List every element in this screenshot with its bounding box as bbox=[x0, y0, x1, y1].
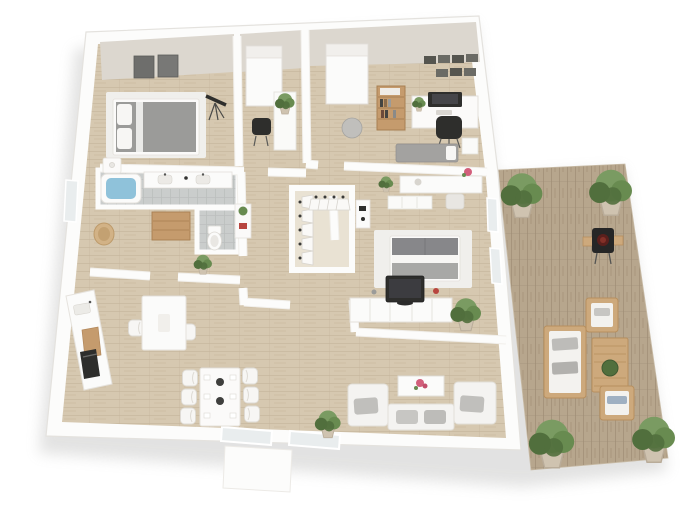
left-wall-window bbox=[64, 180, 78, 222]
kitchen-faucet bbox=[89, 301, 92, 304]
outdoor-coffee-table bbox=[592, 338, 628, 392]
tv-stand bbox=[397, 301, 413, 306]
sofa-cushion bbox=[424, 410, 446, 424]
office-bookshelf bbox=[377, 86, 405, 130]
room-dining bbox=[181, 368, 260, 426]
bed-white-stripe bbox=[392, 255, 458, 263]
centerpiece bbox=[216, 378, 224, 386]
dining-chair bbox=[243, 368, 258, 384]
red-box bbox=[239, 223, 247, 229]
table-pedestal bbox=[158, 314, 170, 332]
console-decor bbox=[361, 217, 365, 221]
bed1-pillow bbox=[117, 104, 132, 125]
office-window-blind bbox=[326, 44, 368, 56]
bathroom-vanity bbox=[144, 172, 232, 188]
folded-towel bbox=[607, 396, 627, 404]
daybed-pillow bbox=[446, 146, 456, 160]
bottom-window-1 bbox=[221, 427, 272, 445]
outdoor-sofa bbox=[544, 326, 586, 398]
dining-chair bbox=[181, 408, 196, 424]
monitor-screen bbox=[432, 94, 458, 104]
tv-panel bbox=[389, 279, 421, 298]
office-side-table bbox=[462, 138, 478, 154]
dining-chair bbox=[182, 389, 197, 405]
flower-leaves bbox=[462, 173, 466, 177]
wicker-basket-inner bbox=[98, 227, 110, 241]
deck-window-2 bbox=[490, 248, 502, 284]
floor-plan-image bbox=[0, 0, 700, 525]
faucet bbox=[164, 173, 166, 175]
study-window-blind bbox=[246, 46, 282, 58]
bathtub-water bbox=[106, 178, 136, 199]
keyboard bbox=[436, 110, 452, 115]
pink-flowers bbox=[423, 384, 428, 389]
deck-window-1 bbox=[487, 198, 498, 232]
gray-pouf bbox=[342, 118, 362, 138]
armchair-cushion bbox=[353, 397, 378, 415]
study-desk-chair bbox=[252, 118, 271, 135]
outdoor-armchair-top bbox=[586, 298, 618, 332]
sofa-pillow bbox=[552, 361, 579, 374]
faucet bbox=[202, 173, 204, 175]
vanity-decor bbox=[415, 179, 422, 186]
flower-leaves bbox=[414, 386, 418, 390]
armchair-pillow bbox=[594, 308, 610, 316]
console-decor bbox=[359, 206, 366, 211]
decor-flower bbox=[433, 288, 439, 294]
sideboard bbox=[388, 196, 432, 209]
outdoor-armchair-bottom bbox=[600, 386, 634, 420]
coffee-table bbox=[398, 376, 444, 396]
sofa-pillow bbox=[552, 337, 579, 351]
sink bbox=[158, 175, 172, 184]
console-table bbox=[356, 200, 370, 228]
dining-chair bbox=[183, 370, 198, 386]
house bbox=[46, 16, 521, 492]
vanity-stool bbox=[446, 194, 464, 209]
armchair-cushion bbox=[459, 395, 484, 413]
green-bowl bbox=[602, 360, 618, 376]
shelf-plant bbox=[239, 207, 248, 216]
sofa-cushion bbox=[396, 410, 418, 424]
floor-plan-svg bbox=[0, 0, 700, 525]
nightstand-lamp bbox=[109, 162, 114, 167]
bed1-throw bbox=[136, 102, 143, 152]
decor-item bbox=[372, 290, 377, 295]
wall-picture bbox=[158, 55, 178, 77]
dining-chair bbox=[244, 387, 259, 403]
grill-embers bbox=[600, 237, 606, 243]
vanity-desk bbox=[400, 176, 482, 193]
toilet bbox=[208, 226, 222, 250]
bed1-pillow bbox=[117, 128, 132, 149]
hall-console bbox=[356, 200, 370, 228]
centerpiece bbox=[216, 397, 224, 405]
office-chair bbox=[436, 116, 462, 139]
master-bed bbox=[390, 236, 460, 281]
bath-accessory bbox=[184, 176, 188, 180]
kitchen-chair bbox=[129, 320, 144, 336]
wall-picture bbox=[134, 56, 154, 78]
entry-porch bbox=[223, 446, 292, 492]
dining-chair bbox=[245, 406, 260, 422]
wooden-dresser bbox=[152, 212, 190, 240]
sink bbox=[196, 175, 210, 184]
